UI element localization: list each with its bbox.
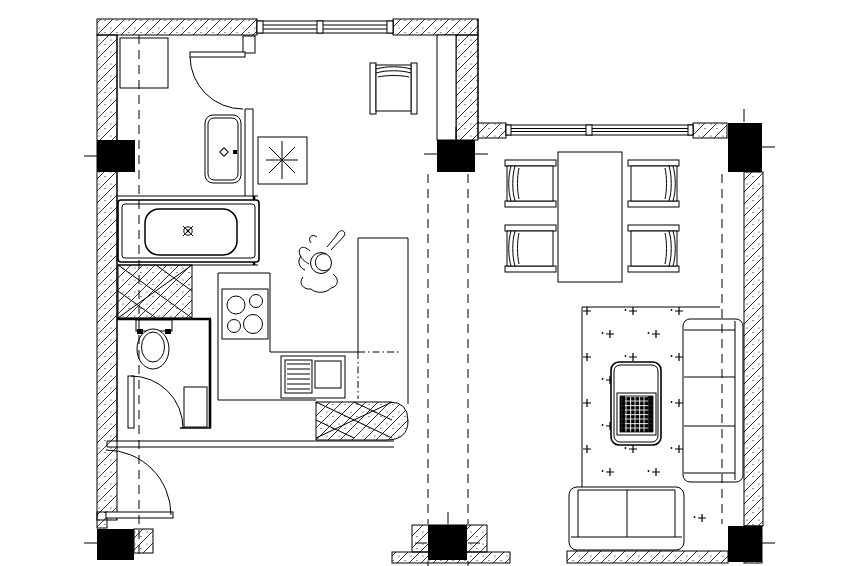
wall-top-left: [97, 19, 257, 35]
shaft-duct: [437, 35, 456, 140]
dining-chair: [628, 225, 679, 272]
sofa-three-seat: [683, 319, 743, 482]
column-bottom-left: [97, 529, 134, 560]
wall-shaft: [456, 35, 478, 140]
dining-table: [558, 152, 622, 282]
washing-machine: [120, 38, 168, 88]
stove-4-burner: [222, 289, 268, 339]
dining-chair: [505, 225, 556, 272]
washbasin-cabinet: [205, 115, 241, 183]
lattice-tray: [617, 393, 656, 435]
column-bottom-center: [428, 525, 467, 560]
coffee-table: [611, 362, 661, 445]
desk-chair: [370, 63, 417, 114]
door-toilet: [128, 376, 183, 428]
floor-plan-drawing: [0, 0, 849, 566]
column-bottom-right: [728, 526, 762, 562]
floor-plan-canvas: [0, 0, 849, 566]
toilet-corner-basin: [184, 387, 207, 427]
wall-bottom-living: [567, 551, 728, 563]
column-top-center: [437, 140, 475, 172]
window-top-left: [257, 21, 393, 33]
wall-rightwing-topright: [693, 123, 727, 138]
dining-chair: [628, 160, 679, 207]
wall-rightwing-topleft: [478, 123, 506, 138]
dining-area: [505, 152, 679, 282]
asterisk-fixture: [258, 137, 307, 184]
kitchen-sink-unit: [281, 356, 345, 398]
kitchen-end-wall: [316, 402, 408, 440]
person-figure: [299, 231, 345, 293]
sofa-two-seat: [569, 487, 684, 550]
washing-machine-pan: [118, 265, 192, 318]
door-laundry: [190, 52, 245, 109]
wall-bit-bottom-left: [134, 529, 153, 553]
wall-top-mid: [393, 19, 478, 35]
dining-chair: [505, 160, 556, 207]
wall-right: [744, 172, 763, 526]
toilet: [136, 320, 172, 369]
window-top-right: [506, 125, 693, 135]
column-top-left: [97, 140, 135, 172]
column-top-right: [728, 123, 762, 172]
